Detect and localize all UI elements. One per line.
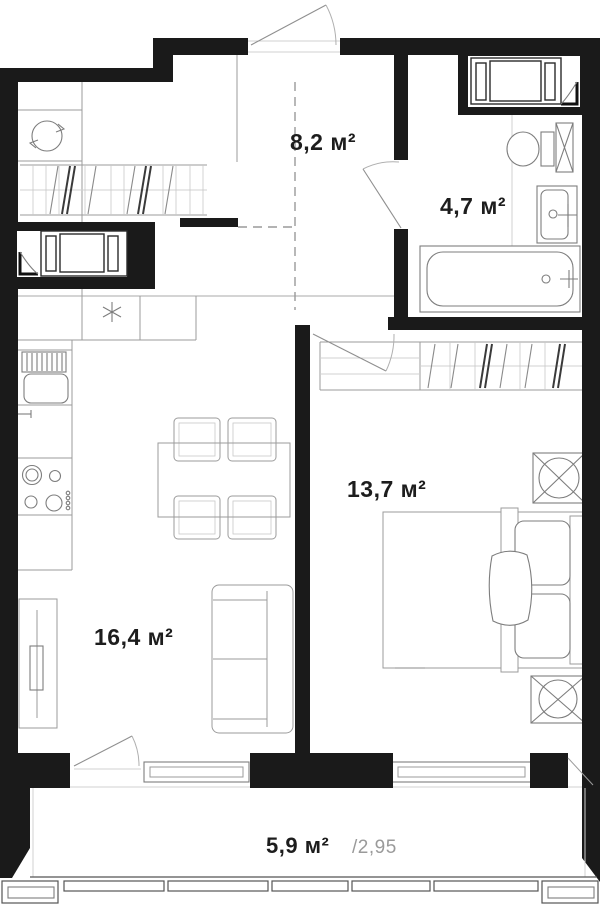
wall: [0, 68, 18, 753]
bathtub: [420, 246, 580, 312]
balcony-door: [74, 736, 141, 769]
wall: [250, 753, 393, 788]
vent-marker-bottom: [531, 676, 585, 723]
fridge-snowflake-icon: [103, 302, 121, 322]
wall: [582, 38, 600, 858]
wall: [18, 753, 70, 788]
room-label-bathroom: 4,7 м²: [440, 193, 506, 219]
glazing-end-cap: [542, 881, 598, 903]
wall: [530, 753, 568, 788]
bathroom-door: [363, 162, 401, 228]
chair: [174, 418, 220, 461]
vent-block-left: [13, 222, 155, 289]
kitchen-sink: [18, 352, 68, 418]
stove: [23, 466, 70, 512]
kitchen: [18, 296, 196, 570]
sofa: [212, 585, 293, 733]
floor-plan-page: 8,2 м² 4,7 м² 13,7 м² 16,4 м² 5,9 м² /2,…: [0, 0, 600, 905]
room-label-hallway: 8,2 м²: [290, 129, 356, 155]
bathroom-sink: [537, 186, 577, 243]
dining-table: [158, 443, 290, 517]
room-label-balcony-coefficient: /2,95: [352, 837, 397, 858]
wall: [388, 317, 600, 330]
wall: [153, 38, 173, 82]
wall: [295, 325, 310, 753]
dining-set: [158, 418, 290, 539]
vent-grille: [556, 123, 573, 172]
room-label-bedroom: 13,7 м²: [347, 476, 426, 502]
laundry-machine-icon: [30, 121, 64, 151]
tv-stand: [19, 599, 57, 728]
bedroom-door: [313, 334, 394, 371]
closet-hanging-rail: [20, 165, 207, 215]
wall: [394, 53, 408, 160]
floor-plan: 8,2 м² 4,7 м² 13,7 м² 16,4 м² 5,9 м² /2,…: [0, 0, 600, 905]
room-label-living-kitchen: 16,4 м²: [94, 624, 173, 650]
vent-block-top: [458, 50, 590, 115]
wall: [394, 229, 408, 317]
bed: [383, 508, 584, 672]
chair: [228, 418, 276, 461]
wall: [180, 218, 238, 227]
entry-closet: [18, 55, 237, 340]
entry-door: [248, 5, 340, 52]
room-label-balcony: 5,9 м²: [266, 833, 329, 858]
vent-marker-top: [533, 453, 585, 503]
bedroom-window: [392, 762, 531, 782]
glazing-end-cap: [2, 881, 58, 903]
toilet: [507, 132, 554, 166]
throw-blanket: [489, 551, 532, 625]
wall: [0, 68, 155, 82]
bedroom-wardrobe: [320, 342, 583, 390]
